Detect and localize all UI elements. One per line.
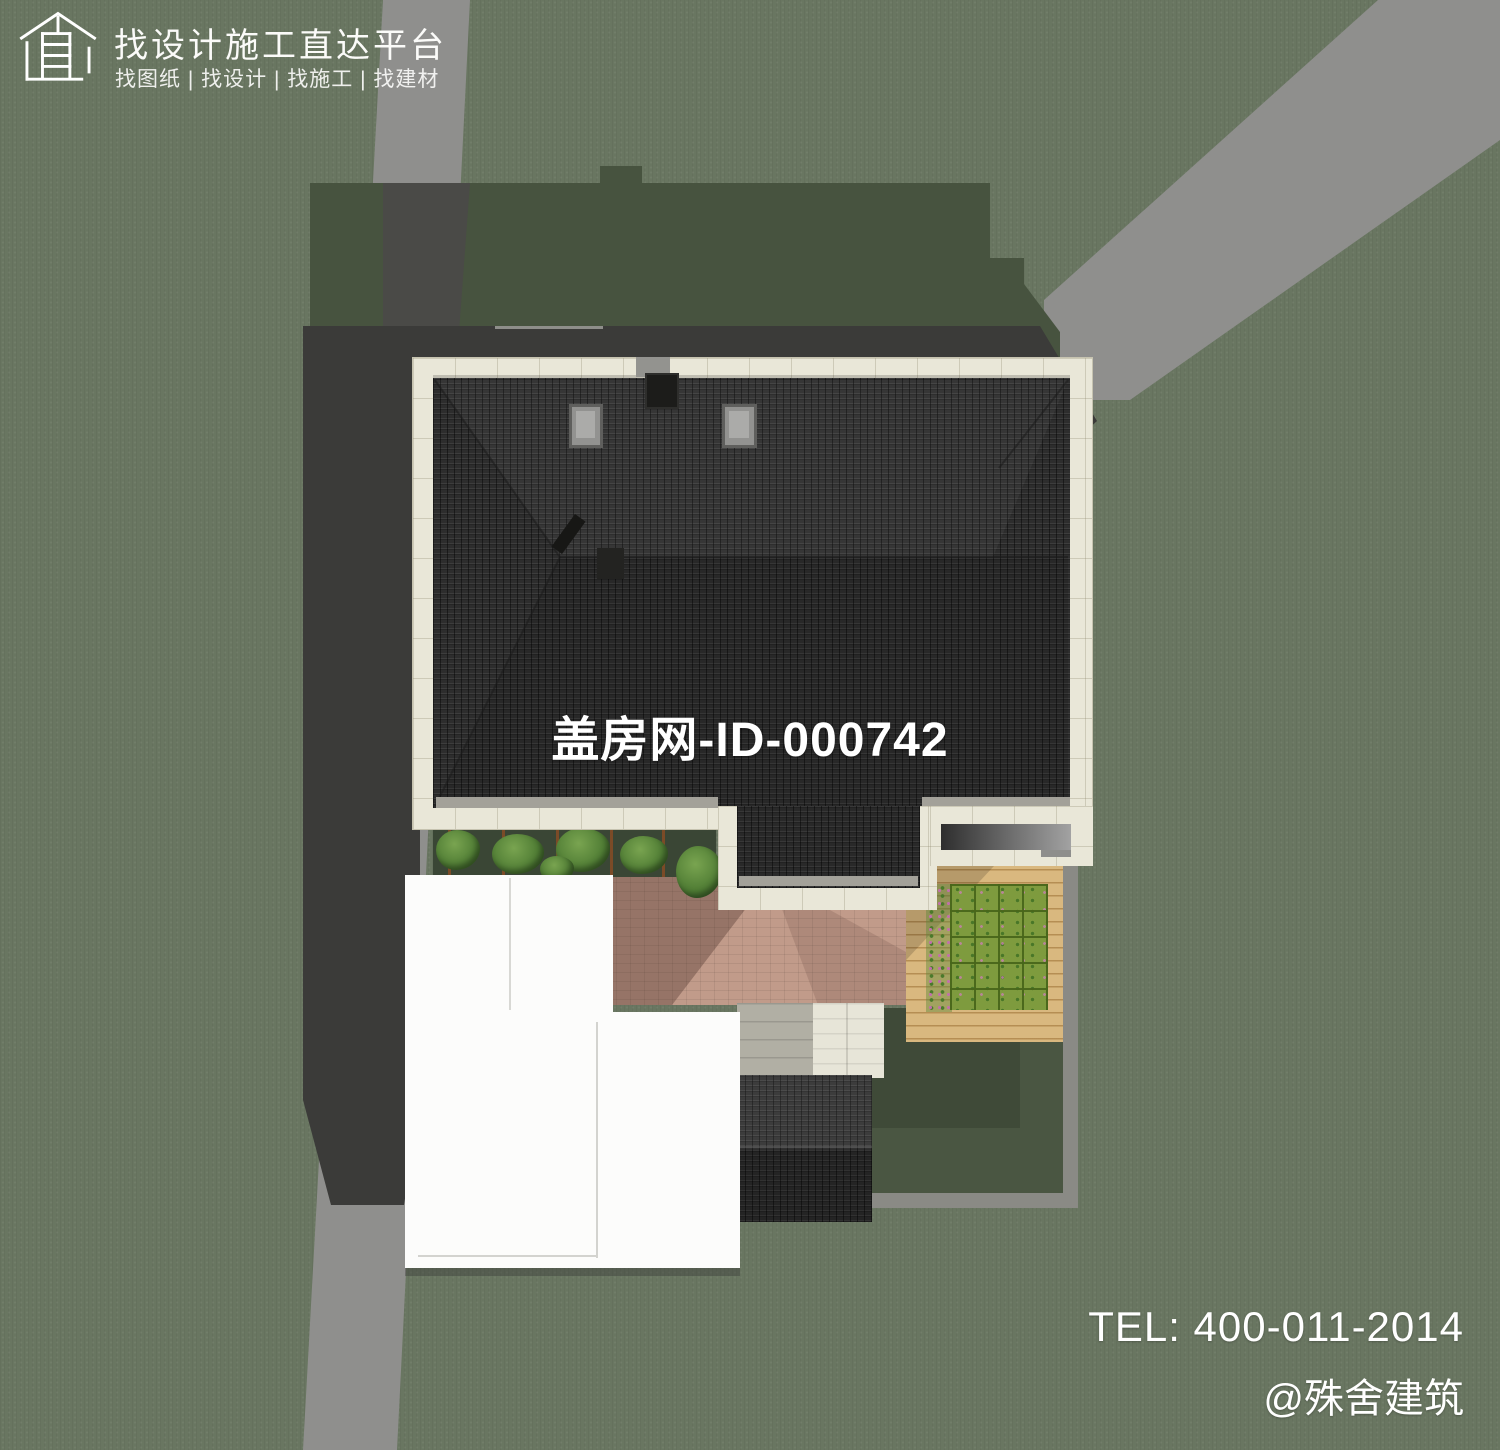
parapet-top-shade bbox=[433, 375, 1070, 378]
garage-roof-seam-2 bbox=[596, 1022, 598, 1258]
tel-label: TEL: 400-011-2014 bbox=[1088, 1303, 1464, 1351]
roof-vent-box bbox=[597, 548, 624, 579]
site-plan-rendering: 找设计施工直达平台 找图纸 | 找设计 | 找施工 | 找建材 盖房网-ID-0… bbox=[0, 0, 1500, 1450]
garage-edge-shadow bbox=[405, 1268, 740, 1276]
stone-steps-grey-half bbox=[737, 1003, 813, 1078]
logo-title: 找设计施工直达平台 bbox=[114, 18, 447, 67]
entry-canopy bbox=[941, 824, 1071, 850]
extension-gutter bbox=[739, 876, 918, 886]
skylight-glass bbox=[729, 411, 749, 438]
courtyard-wall-south bbox=[868, 1193, 1078, 1208]
skylight-left bbox=[569, 404, 603, 448]
skylight-right bbox=[722, 404, 757, 448]
skylight-glass bbox=[576, 411, 595, 438]
steps-divider bbox=[846, 1003, 848, 1078]
entry-gate-roof-shading bbox=[738, 1075, 872, 1222]
garage-roof-seam-3 bbox=[418, 1255, 598, 1257]
fence-line bbox=[495, 326, 603, 329]
gate-ridge bbox=[738, 1146, 872, 1148]
logo: 找设计施工直达平台 找图纸 | 找设计 | 找施工 | 找建材 bbox=[12, 6, 472, 98]
roof-gutter-left bbox=[436, 797, 718, 808]
garage-roof-seam-1 bbox=[509, 878, 511, 1010]
house-outline-logo-icon bbox=[12, 8, 104, 92]
planting-grid-lawn bbox=[950, 884, 1048, 1010]
canopy-step bbox=[1041, 850, 1071, 857]
logo-subtitle: 找图纸 | 找设计 | 找施工 | 找建材 bbox=[115, 63, 439, 93]
chimney bbox=[645, 373, 679, 409]
studio-handle: @殊舍建筑 bbox=[1263, 1366, 1464, 1424]
courtyard-wall-east bbox=[1063, 845, 1078, 1208]
watermark-site-id: 盖房网-ID-000742 bbox=[551, 700, 948, 770]
trellis-bar bbox=[610, 823, 613, 877]
